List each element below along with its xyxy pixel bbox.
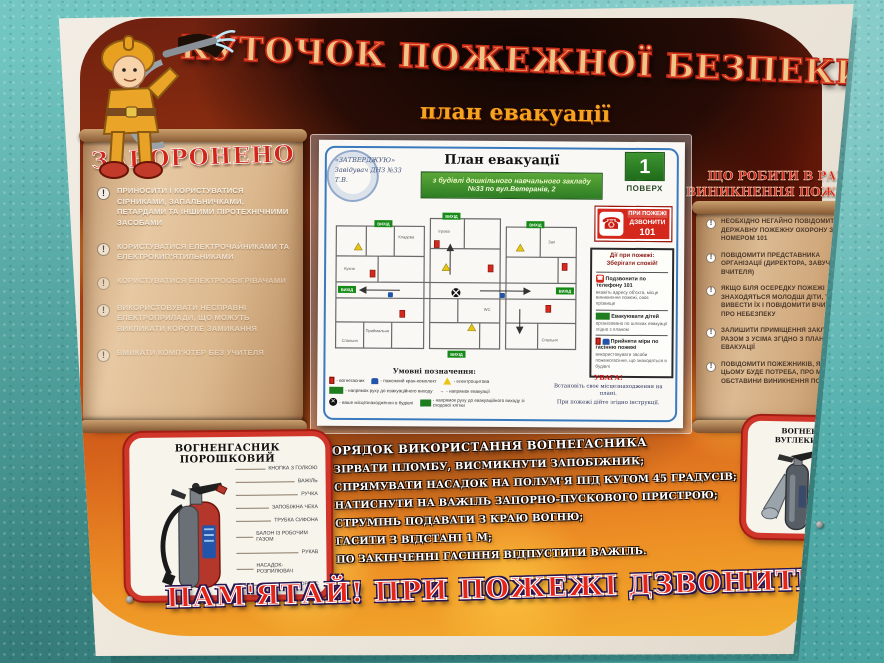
hydrant-chip-icon bbox=[602, 338, 609, 344]
body-highlight bbox=[789, 474, 795, 522]
legend-title: Умовні позначення: bbox=[329, 366, 539, 376]
room-label: Кладова bbox=[398, 234, 415, 239]
part-label: РОЗТРУБ bbox=[824, 513, 878, 519]
arm bbox=[148, 68, 178, 98]
eye bbox=[122, 68, 126, 72]
exit-badge: ВИХІД bbox=[341, 287, 354, 292]
part-label: ЗАПОБІЖНА ЧЕКА bbox=[236, 505, 318, 512]
exclamation-icon: ! bbox=[706, 253, 716, 263]
action-sub: організовано по шляхах евакуації згідно … bbox=[596, 320, 668, 332]
part-label: ТРУБКА СИФОНА bbox=[236, 518, 318, 525]
leg bbox=[138, 132, 152, 164]
exclamation-icon: ! bbox=[706, 219, 716, 229]
part-label: ВАЖІЛЬ bbox=[236, 479, 318, 486]
eye bbox=[133, 68, 137, 72]
room-label: Кухня bbox=[344, 266, 355, 271]
arrow-chip-icon: → bbox=[440, 389, 445, 394]
plan-legend: Умовні позначення: - вогнегасник - пожеж… bbox=[329, 366, 671, 418]
part-label: РУЧКА bbox=[825, 467, 879, 473]
action-item: ☎ Подзвонити по телефону 101 вкажіть адр… bbox=[596, 271, 668, 307]
action-item: Прийняти міри по гасінню пожежі використ… bbox=[595, 335, 667, 370]
phone-chip-icon: ☎ bbox=[596, 274, 604, 282]
extinguisher-markers bbox=[370, 240, 568, 318]
poster-art-background: КУТОЧОК ПОЖЕЖНОЇ БЕЗПЕКИ план евакуації … bbox=[80, 18, 822, 636]
leader-line bbox=[236, 469, 266, 470]
exclamation-icon: ! bbox=[706, 362, 716, 372]
prohibited-item: ! КОРИСТУВАТИСЯ ЕЛЕКТРОЧАЙНИКАМИ ТА ЕЛЕК… bbox=[97, 242, 291, 263]
handle bbox=[171, 489, 187, 500]
part-label: БАЛОН ІЗ РОБОЧИМ ГАЗОМ bbox=[236, 531, 318, 544]
room-label: WC bbox=[484, 307, 491, 312]
action-head: ☎ Подзвонити по телефону 101 bbox=[596, 274, 668, 289]
what-to-do-item-text: ЯКЩО БІЛЯ ОСЕРЕДКУ ПОЖЕЖІ ЗНАХОДЯТЬСЯ МО… bbox=[721, 285, 854, 319]
attention-title: УВАГА! bbox=[545, 373, 671, 382]
face bbox=[113, 56, 145, 88]
room-label: Спальня bbox=[542, 337, 558, 342]
what-to-do-item-text: ЗАЛИШИТИ ПРИМІЩЕННЯ ЗАКЛАДУ РАЗОМ З УСІМ… bbox=[721, 327, 854, 353]
floor-label: ПОВЕРХ bbox=[623, 184, 667, 193]
action-head: Евакуювати дітей bbox=[596, 312, 668, 320]
prohibited-list: ! ПРИНОСИТИ І КОРИСТУВАТИСЯ СІРНИКАМИ, З… bbox=[97, 186, 291, 375]
legend-attention: УВАГА! Встановіть своє місцезнаходження … bbox=[545, 367, 671, 418]
attention-note: Встановіть своє місцезнаходження на план… bbox=[545, 383, 671, 398]
plan-address-banner: з будівлі дошкільного навчального заклад… bbox=[421, 171, 603, 199]
action-item: Евакуювати дітей організовано по шляхах … bbox=[596, 309, 668, 332]
exclamation-icon: ! bbox=[97, 304, 110, 317]
exit-badge: ВИХІД bbox=[450, 352, 463, 357]
exclamation-icon: ! bbox=[97, 187, 110, 200]
leader-line bbox=[824, 530, 857, 532]
leg bbox=[110, 132, 124, 164]
extinguisher-usage-block: ПОРЯДОК ВИКОРИСТАННЯ ВОГНЕГАСНИКА •ЗІРВА… bbox=[320, 432, 759, 566]
part-label: РУЧКА bbox=[236, 492, 318, 499]
wall: КУТОЧОК ПОЖЕЖНОЇ БЕЗПЕКИ план евакуації … bbox=[0, 0, 884, 663]
action-sub: вкажіть адресу об'єкта, місце виникнення… bbox=[596, 289, 668, 307]
push-pin bbox=[816, 521, 823, 528]
location-chip-icon: ✕ bbox=[329, 398, 337, 406]
actions-title: Дії при пожежі: Зберігати спокій! bbox=[596, 253, 668, 269]
location-marker bbox=[451, 288, 460, 297]
call-line1: ПРИ ПОЖЕЖІ bbox=[627, 210, 667, 218]
usage-item: •ПО ЗАКІНЧЕННІ ГАСІННЯ ВІДПУСТИТИ ВАЖІЛЬ… bbox=[323, 543, 759, 566]
phone-icon: ☎ bbox=[599, 212, 623, 236]
leader-line bbox=[825, 469, 862, 471]
leader-line bbox=[236, 508, 269, 509]
prohibited-item: ! ВМИКАТИ КОМП'ЮТЕР БЕЗ УЧИТЕЛЯ bbox=[97, 348, 291, 362]
legend-grid: - вогнегасник - пожежний кран-комплект -… bbox=[329, 377, 539, 408]
exclamation-icon: ! bbox=[97, 243, 110, 256]
exit-badge: ВИХІД bbox=[559, 289, 572, 294]
evacuation-plan-sheet: «ЗАТВЕРДЖУЮ» Завідувач ДНЗ №33 Т.В. План… bbox=[317, 140, 685, 429]
prohibited-item-text: ВИКОРИСТОВУВАТИ НЕСПРАВНІ ЕЛЕКТРОПРИЛАДИ… bbox=[117, 303, 291, 335]
part-label: ТРУБКА СИФОНА bbox=[824, 498, 878, 504]
exit-badge: ВИХІД bbox=[377, 221, 390, 226]
room-label: Ігрова bbox=[438, 229, 450, 234]
actions-title-line2: Зберігати спокій! bbox=[596, 260, 668, 268]
belt-buckle bbox=[126, 107, 137, 117]
legend-item: - вогнегасник bbox=[329, 377, 364, 384]
floor-number: 1 bbox=[625, 152, 665, 181]
poster-title: КУТОЧОК ПОЖЕЖНОЇ БЕЗПЕКИ bbox=[179, 27, 844, 91]
leader-line bbox=[824, 515, 855, 517]
what-to-do-item: ! ПОВІДОМИТИ ПОЖЕЖНИКІВ, ЯКЩО В ЦЬОМУ БУ… bbox=[706, 361, 854, 387]
call-text: ПРИ ПОЖЕЖІ ДЗВОНИТИ 101 bbox=[627, 210, 667, 238]
co2-labels: ВАЖІЛЬ-КРИШКА З КЛАПАНОМ РУЧКА ЗАПОБІЖНА… bbox=[824, 447, 880, 534]
room-label: Зал bbox=[548, 239, 556, 244]
boot bbox=[134, 162, 162, 178]
hydrant-chip-icon bbox=[371, 378, 378, 384]
plan-banner-line2: №33 по вул.Ветеранів, 2 bbox=[422, 185, 602, 193]
part-label: КНОПКА З ГОЛКОЮ bbox=[235, 466, 317, 473]
exclamation-icon: ! bbox=[706, 328, 716, 338]
part-label: ВАЖІЛЬ-КРИШКА З КЛАПАНОМ bbox=[825, 447, 879, 458]
legend-item: ✕- ваше місцезнаходження в будівлі bbox=[329, 397, 413, 408]
legend-item: - пожежний кран-комплект bbox=[371, 377, 436, 384]
horn-mouth bbox=[762, 508, 779, 519]
leader-line bbox=[236, 553, 298, 555]
leader-line bbox=[237, 569, 254, 570]
leader-line bbox=[236, 537, 253, 538]
room-label: Приймальня bbox=[366, 328, 389, 333]
prohibited-item-text: КОРИСТУВАТИСЯ ЕЛЕКТРООБІГРІВАЧАМИ bbox=[117, 276, 286, 287]
powder-panel-body: КНОПКА З ГОЛКОЮ ВАЖІЛЬ РУЧКА ЗАПОБІЖНА Ч… bbox=[129, 464, 326, 598]
label-patch bbox=[798, 486, 806, 508]
part-label: ЗАПОБІЖНА ЧЕКА bbox=[825, 483, 879, 489]
handle bbox=[777, 454, 794, 463]
evacuation-arrows bbox=[360, 244, 531, 333]
legend-item: - напрямок руху до евакуаційного виходу … bbox=[420, 397, 528, 408]
fire-call-box: ☎ ПРИ ПОЖЕЖІ ДЗВОНИТИ 101 bbox=[594, 206, 672, 243]
legend-item: - напрямок руху до евакуаційного виходу bbox=[329, 387, 432, 395]
exit-chip-icon bbox=[329, 387, 343, 394]
push-pin bbox=[126, 596, 133, 603]
powder-panel-title: ВОГНЕНГАСНИК ПОРОШКОВИЙ bbox=[129, 442, 325, 466]
call-line2: ДЗВОНИТИ bbox=[627, 219, 667, 226]
floor-indicator: 1 ПОВЕРХ bbox=[623, 152, 667, 193]
exit-badge: ВИХІД bbox=[445, 214, 458, 219]
helmet-crest bbox=[124, 36, 133, 50]
powder-labels: КНОПКА З ГОЛКОЮ ВАЖІЛЬ РУЧКА ЗАПОБІЖНА Ч… bbox=[235, 466, 318, 589]
extinguisher-chip-icon bbox=[329, 377, 334, 384]
exit-badges: ВИХІД ВИХІД ВИХІД ВИХІД ВИХІД ВИХІД bbox=[337, 212, 574, 359]
prohibited-item-text: ВМИКАТИ КОМП'ЮТЕР БЕЗ УЧИТЕЛЯ bbox=[117, 348, 264, 359]
leader-line bbox=[236, 521, 271, 522]
exit-chip-icon bbox=[596, 312, 610, 319]
extinguisher-chip-icon bbox=[596, 338, 601, 345]
part-label: РУКАВ bbox=[236, 550, 318, 557]
electrical-chip-icon bbox=[444, 378, 452, 385]
prohibited-item-text: ПРИНОСИТИ І КОРИСТУВАТИСЯ СІРНИКАМИ, ЗАП… bbox=[117, 186, 291, 229]
what-to-do-item-text: ПОВІДОМИТИ ПОЖЕЖНИКІВ, ЯКЩО В ЦЬОМУ БУДЕ… bbox=[721, 361, 854, 387]
action-head: Прийняти міри по гасінню пожежі bbox=[596, 338, 668, 352]
hydrant-markers bbox=[388, 292, 505, 298]
fire-actions-box: Дії при пожежі: Зберігати спокій! ☎ Подз… bbox=[589, 248, 674, 379]
prohibited-item: ! КОРИСТУВАТИСЯ ЕЛЕКТРООБІГРІВАЧАМИ bbox=[97, 276, 291, 290]
leader-line bbox=[236, 482, 295, 484]
fire-safety-poster: КУТОЧОК ПОЖЕЖНОЇ БЕЗПЕКИ план евакуації … bbox=[54, 4, 856, 656]
firefighter-illustration bbox=[66, 24, 236, 182]
what-to-do-item: ! ЗАЛИШИТИ ПРИМІЩЕННЯ ЗАКЛАДУ РАЗОМ З УС… bbox=[706, 327, 854, 353]
legend-item: - електрощитова bbox=[444, 378, 490, 385]
prohibited-item-text: КОРИСТУВАТИСЯ ЕЛЕКТРОЧАЙНИКАМИ ТА ЕЛЕКТР… bbox=[117, 242, 291, 263]
leader-line bbox=[236, 495, 298, 497]
part-label: НАСАДОК-РОЗПИЛЮВАЧ bbox=[237, 563, 319, 576]
powder-extinguisher-panel: ВОГНЕНГАСНИК ПОРОШКОВИЙ bbox=[124, 431, 332, 601]
attention-note: При пожежі дійте згідно інструкції. bbox=[545, 399, 671, 407]
leader-line bbox=[825, 500, 839, 501]
poster-subtitle: план евакуації bbox=[380, 98, 650, 129]
leader-line bbox=[825, 485, 837, 486]
floor-plan-drawing: ВИХІД ВИХІД ВИХІД ВИХІД ВИХІД ВИХІД bbox=[329, 204, 582, 368]
what-to-do-title: ЩО РОБИТИ В РАЗІ ВИНИКНЕННЯ ПОЖЕЖІ! bbox=[684, 168, 874, 200]
prohibited-item: ! ПРИНОСИТИ І КОРИСТУВАТИСЯ СІРНИКАМИ, З… bbox=[97, 186, 291, 229]
room-label: Спальня bbox=[342, 338, 358, 343]
legend-item: →- напрямок евакуації bbox=[440, 388, 490, 395]
exit-chip-icon bbox=[420, 399, 431, 406]
extinguisher-cylinder-gray bbox=[179, 506, 199, 588]
exit-badge: ВИХІД bbox=[529, 222, 542, 227]
prohibited-item: ! ВИКОРИСТОВУВАТИ НЕСПРАВНІ ЕЛЕКТРОПРИЛА… bbox=[97, 303, 291, 335]
exclamation-icon: ! bbox=[97, 349, 110, 362]
boot bbox=[100, 162, 128, 178]
call-line3: 101 bbox=[627, 227, 667, 238]
legend-symbols: Умовні позначення: - вогнегасник - пожеж… bbox=[329, 366, 539, 417]
exclamation-icon: ! bbox=[706, 286, 716, 296]
plan-banner-line1: з будівлі дошкільного навчального заклад… bbox=[422, 175, 602, 185]
powder-extinguisher-illustration bbox=[139, 467, 232, 594]
part-label: КОРПУС bbox=[824, 528, 878, 534]
exclamation-icon: ! bbox=[97, 277, 110, 290]
